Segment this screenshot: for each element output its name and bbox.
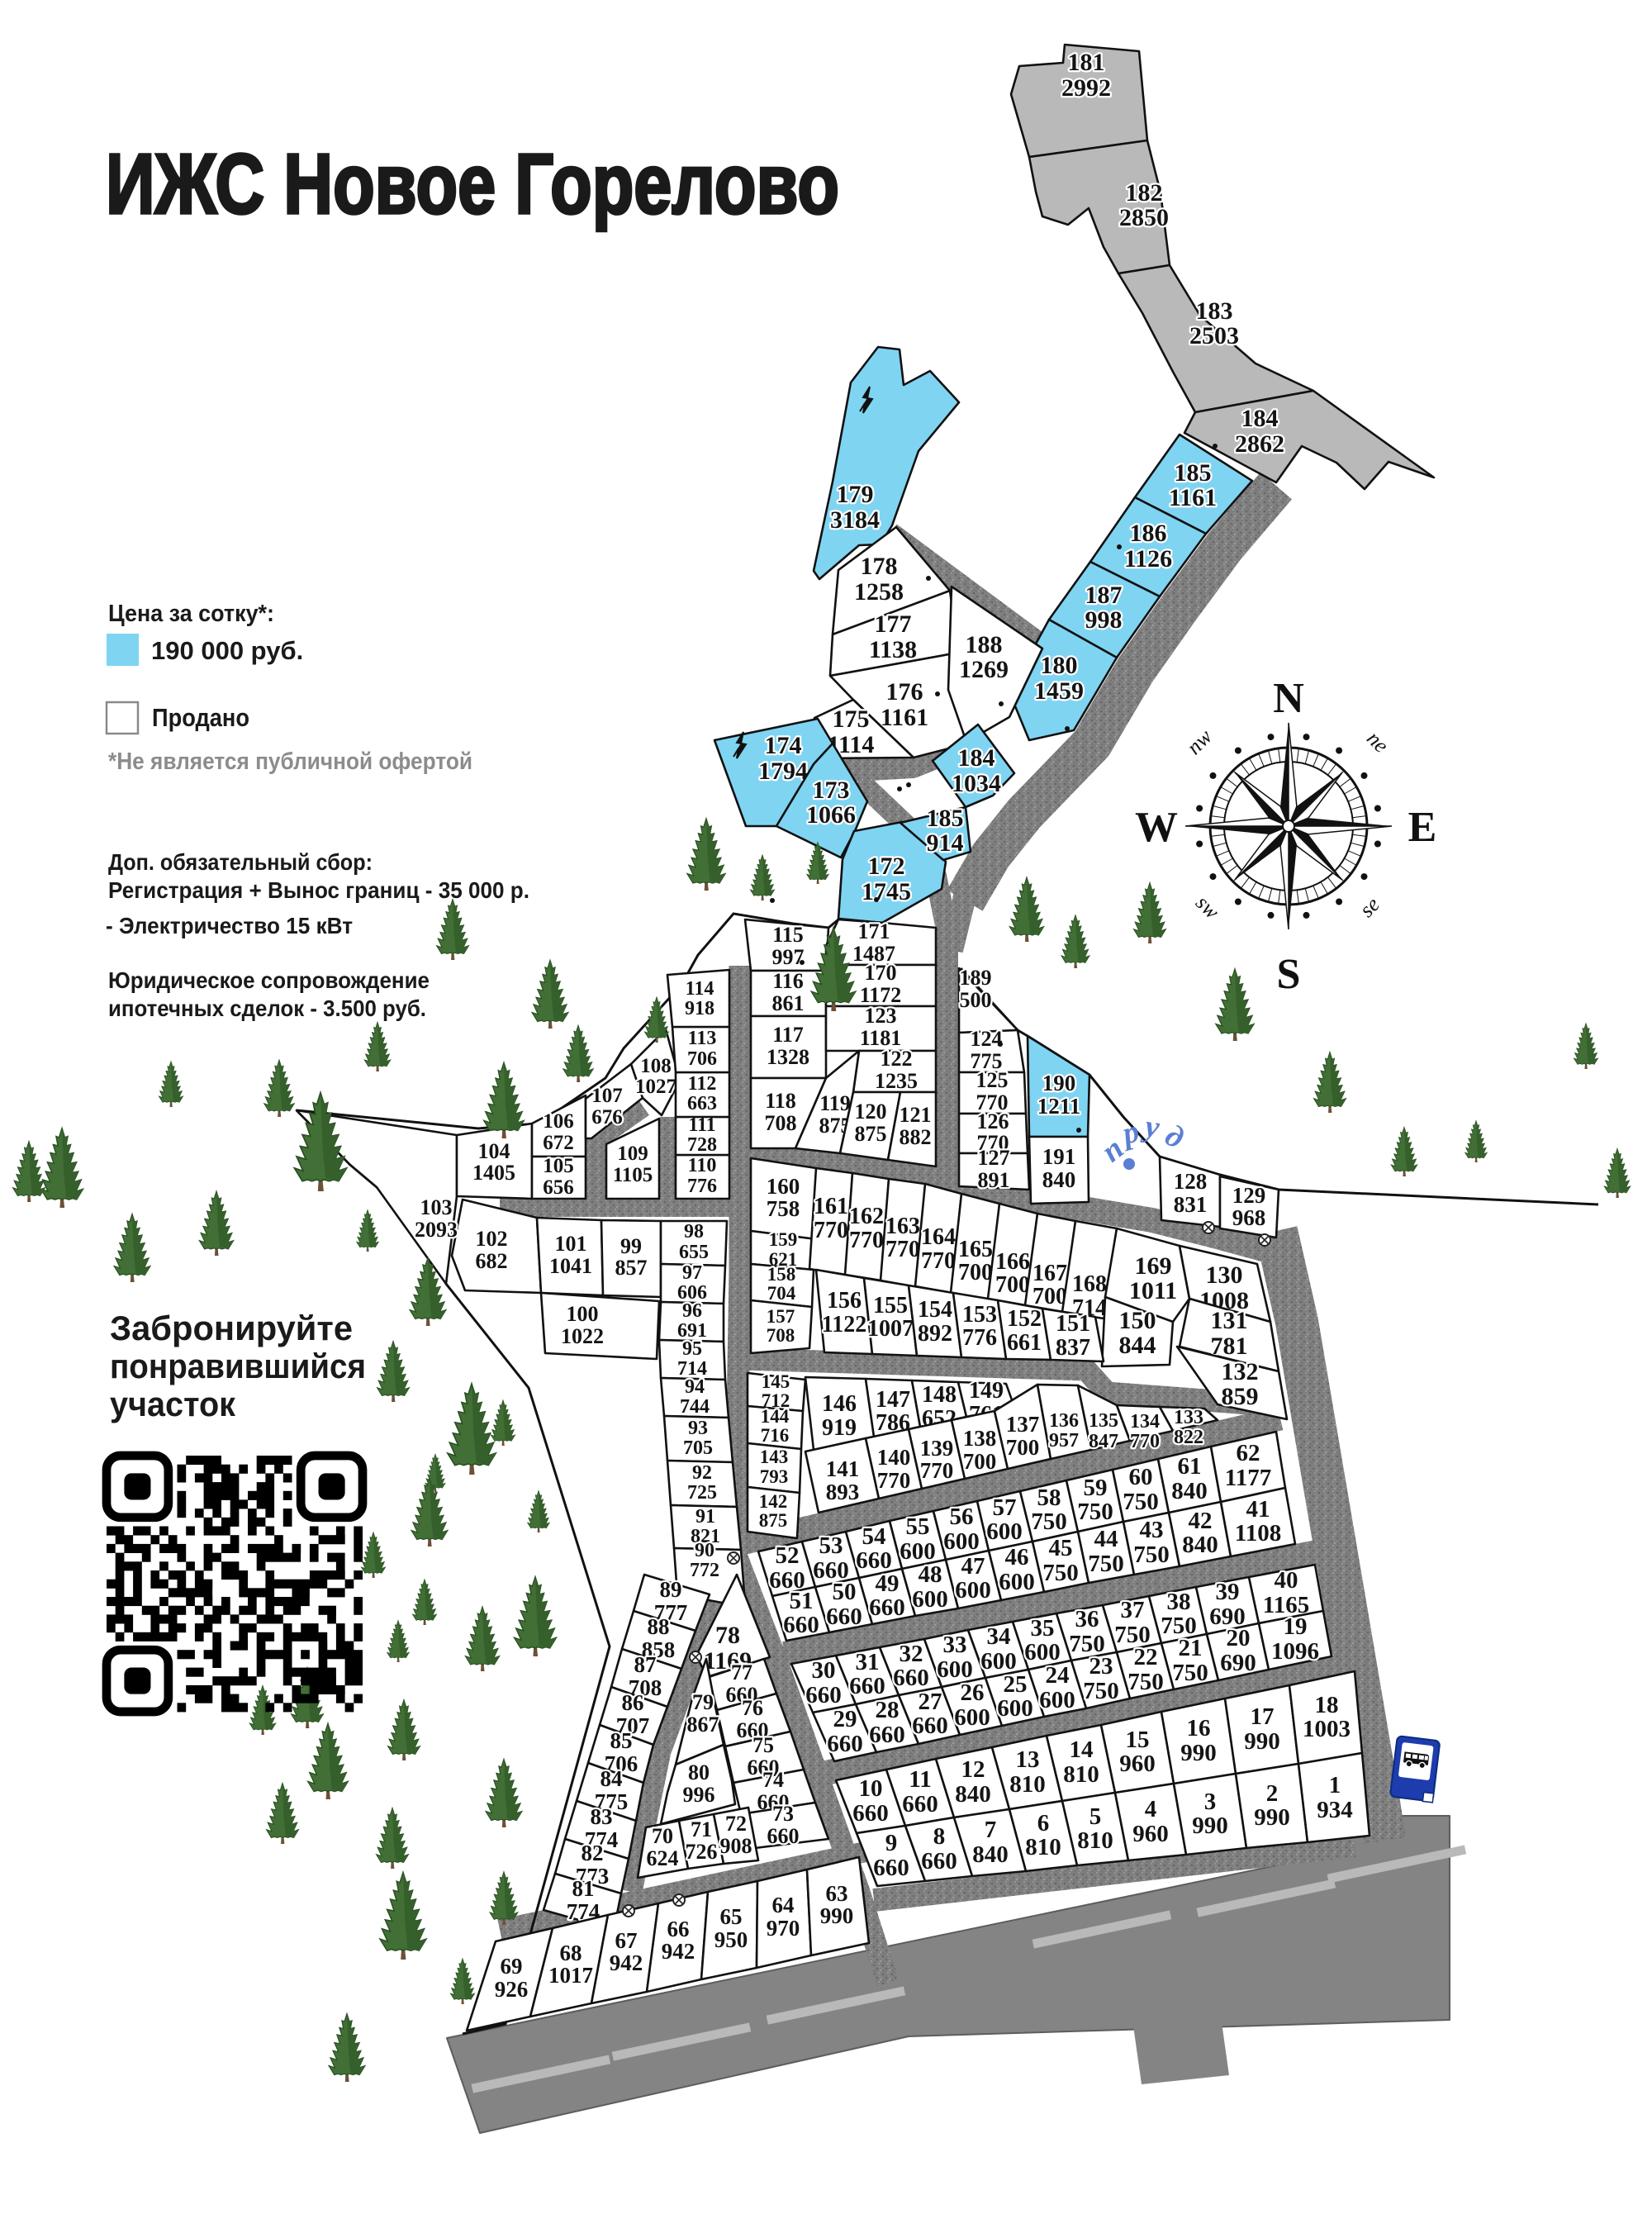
svg-text:49: 49 [876,1570,900,1597]
svg-text:655: 655 [679,1242,709,1263]
svg-text:165: 165 [958,1237,993,1262]
svg-text:1017: 1017 [548,1963,593,1988]
svg-text:1177: 1177 [1225,1465,1271,1491]
svg-text:67: 67 [615,1928,638,1953]
svg-text:Регистрация + Вынос границ - 3: Регистрация + Вынос границ - 35 000 р. [108,877,529,903]
svg-text:45: 45 [1049,1535,1073,1561]
svg-text:171: 171 [858,919,890,943]
svg-text:68: 68 [560,1941,582,1965]
svg-text:3: 3 [1204,1789,1217,1815]
svg-text:139: 139 [920,1436,954,1461]
svg-text:113: 113 [688,1028,717,1049]
svg-text:168: 168 [1072,1271,1107,1297]
svg-text:понравившийся: понравившийся [110,1347,366,1385]
svg-text:169: 169 [1135,1252,1172,1280]
svg-text:23: 23 [1089,1653,1113,1680]
svg-text:1022: 1022 [561,1324,604,1348]
svg-text:660: 660 [805,1682,842,1708]
svg-text:2862: 2862 [1235,430,1284,458]
svg-text:7: 7 [985,1817,997,1843]
svg-text:29: 29 [833,1706,857,1732]
svg-text:793: 793 [760,1466,789,1487]
svg-text:160: 160 [767,1174,800,1199]
svg-text:145: 145 [762,1371,790,1392]
svg-text:998: 998 [1085,606,1123,634]
svg-text:20: 20 [1227,1625,1251,1651]
svg-text:177: 177 [875,611,912,638]
svg-text:94: 94 [685,1376,705,1398]
svg-text:167: 167 [1032,1261,1067,1286]
svg-text:891: 891 [978,1168,1010,1192]
svg-text:73: 73 [772,1802,794,1826]
svg-text:W: W [1135,804,1178,851]
svg-text:600: 600 [955,1577,991,1603]
svg-text:840: 840 [955,1781,991,1808]
svg-text:57: 57 [993,1494,1017,1521]
svg-text:950: 950 [714,1927,748,1952]
svg-text:660: 660 [852,1800,889,1827]
svg-text:179: 179 [837,481,874,508]
svg-text:926: 926 [495,1977,529,2002]
svg-text:170: 170 [865,961,897,985]
svg-text:859: 859 [1222,1383,1259,1410]
svg-text:129: 129 [1232,1183,1266,1208]
svg-text:162: 162 [849,1204,884,1229]
svg-text:656: 656 [543,1176,574,1199]
svg-text:660: 660 [873,1855,909,1881]
svg-text:32: 32 [900,1641,923,1667]
svg-text:147: 147 [876,1387,910,1413]
svg-text:867: 867 [687,1713,719,1737]
svg-text:101: 101 [555,1232,587,1256]
svg-text:55: 55 [906,1513,930,1540]
svg-text:53: 53 [819,1532,843,1559]
svg-text:1405: 1405 [472,1161,515,1185]
svg-text:Юридическое сопровождение: Юридическое сопровождение [108,967,430,993]
svg-text:185: 185 [927,805,964,832]
svg-text:22: 22 [1134,1644,1158,1670]
svg-text:42: 42 [1189,1508,1213,1534]
svg-text:156: 156 [827,1288,862,1314]
svg-text:4: 4 [1145,1796,1157,1822]
svg-text:89: 89 [660,1577,682,1602]
svg-text:126: 126 [977,1109,1009,1133]
svg-text:682: 682 [476,1249,508,1273]
svg-text:840: 840 [1042,1167,1076,1192]
svg-text:121: 121 [900,1103,932,1127]
svg-text:27: 27 [919,1689,942,1715]
svg-text:104: 104 [478,1139,510,1163]
svg-text:758: 758 [767,1196,800,1221]
svg-text:31: 31 [856,1649,880,1675]
svg-text:191: 191 [1042,1144,1076,1169]
svg-text:81: 81 [572,1876,595,1901]
svg-text:106: 106 [543,1110,574,1133]
svg-text:942: 942 [662,1939,695,1964]
svg-text:120: 120 [855,1100,887,1124]
svg-text:776: 776 [962,1325,997,1351]
svg-text:Забронируйте: Забронируйте [110,1309,353,1347]
svg-text:772: 772 [690,1560,719,1581]
svg-text:86: 86 [622,1690,644,1715]
svg-text:164: 164 [921,1224,956,1250]
svg-text:91: 91 [695,1506,715,1527]
svg-text:15: 15 [1126,1727,1150,1753]
svg-text:S: S [1277,951,1301,998]
svg-text:181: 181 [1068,49,1105,76]
svg-text:157: 157 [767,1306,795,1327]
svg-text:661: 661 [1007,1330,1042,1356]
svg-text:706: 706 [687,1048,717,1070]
svg-text:700: 700 [958,1260,993,1285]
svg-text:1258: 1258 [854,578,904,606]
svg-text:66: 66 [667,1917,690,1941]
svg-text:1105: 1105 [613,1164,653,1186]
svg-text:117: 117 [772,1023,804,1047]
svg-text:770: 770 [920,1458,954,1483]
svg-text:183: 183 [1196,297,1233,325]
svg-text:1745: 1745 [862,878,911,905]
svg-text:660: 660 [912,1713,948,1739]
svg-text:153: 153 [962,1302,997,1328]
svg-text:750: 750 [1031,1508,1067,1535]
svg-text:77: 77 [731,1660,752,1684]
svg-text:125: 125 [976,1068,1009,1092]
svg-text:934: 934 [1317,1797,1353,1823]
svg-text:172: 172 [868,853,905,880]
svg-text:1007: 1007 [867,1316,914,1342]
svg-text:704: 704 [767,1283,796,1304]
svg-text:2992: 2992 [1061,74,1111,102]
svg-text:1027: 1027 [635,1076,676,1098]
svg-text:10: 10 [859,1775,883,1802]
svg-text:188: 188 [966,631,1003,658]
svg-text:726: 726 [686,1840,718,1864]
svg-text:186: 186 [1130,520,1167,547]
svg-text:914: 914 [927,829,964,857]
svg-text:115: 115 [772,923,804,947]
svg-text:600: 600 [954,1704,990,1731]
svg-text:708: 708 [765,1111,797,1135]
svg-text:74: 74 [762,1768,784,1792]
svg-text:728: 728 [687,1134,717,1156]
svg-text:137: 137 [1006,1412,1040,1437]
svg-text:136: 136 [1049,1410,1079,1432]
svg-text:750: 750 [1172,1660,1208,1686]
svg-text:62: 62 [1237,1440,1260,1466]
svg-text:127: 127 [978,1146,1010,1170]
svg-text:149: 149 [969,1378,1004,1404]
svg-text:1011: 1011 [1129,1277,1177,1304]
svg-text:970: 970 [767,1916,800,1941]
svg-text:Продано: Продано [152,703,249,732]
svg-text:660: 660 [902,1791,938,1817]
svg-text:919: 919 [822,1415,857,1441]
svg-text:600: 600 [1039,1687,1075,1713]
svg-text:6: 6 [1037,1810,1050,1836]
svg-text:770: 770 [921,1248,956,1274]
svg-text:34: 34 [987,1623,1011,1650]
svg-text:831: 831 [1174,1192,1208,1217]
svg-text:1122: 1122 [822,1312,866,1337]
svg-text:1161: 1161 [881,704,928,731]
svg-text:660: 660 [869,1594,905,1621]
svg-text:71: 71 [691,1817,712,1841]
svg-text:750: 750 [1088,1551,1124,1577]
svg-text:60: 60 [1129,1464,1153,1490]
svg-text:105: 105 [543,1155,574,1177]
svg-text:69: 69 [501,1954,523,1979]
svg-text:184: 184 [958,744,995,772]
svg-text:114: 114 [686,978,714,1000]
svg-text:78: 78 [715,1622,740,1649]
svg-text:100: 100 [567,1302,599,1326]
svg-text:99: 99 [620,1234,642,1258]
svg-text:21: 21 [1179,1635,1203,1661]
svg-text:990: 990 [1180,1740,1217,1766]
svg-text:95: 95 [682,1338,702,1360]
svg-text:Доп. обязательный сбор:: Доп. обязательный сбор: [108,849,373,875]
svg-text:25: 25 [1004,1671,1028,1698]
svg-text:128: 128 [1174,1169,1208,1194]
svg-text:33: 33 [943,1632,967,1658]
svg-text:43: 43 [1140,1517,1164,1543]
svg-text:80: 80 [688,1760,710,1784]
svg-text:892: 892 [918,1321,952,1347]
svg-text:660: 660 [767,1824,800,1848]
svg-text:2093: 2093 [415,1218,458,1242]
svg-text:810: 810 [1063,1761,1099,1788]
svg-text:17: 17 [1251,1703,1275,1730]
svg-text:46: 46 [1005,1544,1029,1570]
svg-text:185: 185 [1175,459,1212,487]
svg-text:663: 663 [687,1093,717,1114]
svg-text:184: 184 [1241,405,1279,432]
svg-text:141: 141 [826,1456,860,1481]
svg-text:35: 35 [1031,1615,1055,1641]
svg-text:18: 18 [1315,1692,1339,1718]
svg-text:12: 12 [961,1756,985,1783]
svg-text:75: 75 [752,1733,774,1757]
svg-text:48: 48 [919,1561,942,1588]
svg-text:Цена за сотку*:: Цена за сотку*: [108,601,274,627]
svg-text:- Электричество 15 кВт: - Электричество 15 кВт [106,913,353,938]
svg-text:960: 960 [1119,1751,1156,1777]
svg-text:500: 500 [960,988,992,1012]
svg-text:161: 161 [814,1194,848,1219]
svg-text:750: 750 [1133,1542,1170,1568]
svg-text:9: 9 [885,1830,898,1856]
svg-text:600: 600 [999,1569,1035,1595]
svg-text:175: 175 [833,706,870,733]
svg-text:E: E [1408,804,1437,851]
svg-text:882: 882 [900,1125,932,1149]
svg-text:159: 159 [769,1229,798,1250]
svg-text:ИЖС Новое Горелово: ИЖС Новое Горелово [106,136,839,231]
svg-text:187: 187 [1085,582,1123,609]
svg-text:116: 116 [772,969,804,993]
svg-text:61: 61 [1178,1453,1202,1480]
svg-text:190: 190 [1042,1071,1076,1095]
svg-text:957: 957 [1049,1430,1079,1451]
svg-text:122: 122 [881,1047,913,1071]
svg-text:700: 700 [995,1272,1030,1298]
svg-text:660: 660 [826,1603,862,1630]
svg-text:861: 861 [772,991,805,1015]
svg-text:770: 770 [1130,1431,1160,1452]
svg-text:36: 36 [1075,1606,1099,1632]
svg-text:1066: 1066 [806,801,856,829]
svg-text:135: 135 [1089,1410,1118,1432]
svg-text:660: 660 [783,1612,819,1638]
svg-text:79: 79 [692,1690,714,1714]
svg-text:716: 716 [761,1425,790,1446]
svg-text:660: 660 [921,1848,957,1874]
svg-text:1108: 1108 [1235,1520,1281,1546]
svg-text:50: 50 [833,1579,857,1605]
svg-text:158: 158 [767,1264,796,1285]
svg-text:24: 24 [1046,1662,1070,1689]
svg-text:2503: 2503 [1189,322,1239,349]
svg-text:ипотечных сделок - 3.500 руб.: ипотечных сделок - 3.500 руб. [108,995,426,1021]
svg-text:123: 123 [865,1004,897,1028]
svg-text:88: 88 [648,1614,670,1639]
svg-text:672: 672 [543,1132,574,1154]
svg-text:968: 968 [1232,1205,1266,1230]
svg-text:166: 166 [995,1249,1030,1275]
svg-text:124: 124 [971,1027,1003,1051]
svg-text:11: 11 [909,1766,931,1793]
svg-text:26: 26 [961,1680,985,1706]
svg-text:1138: 1138 [869,636,917,663]
svg-text:102: 102 [476,1227,508,1251]
svg-text:600: 600 [912,1586,948,1613]
svg-text:*Не является публичной офертой: *Не является публичной офертой [108,748,472,775]
svg-text:960: 960 [1132,1821,1169,1847]
svg-text:84: 84 [601,1766,623,1791]
svg-text:700: 700 [1006,1435,1040,1460]
svg-text:76: 76 [742,1696,763,1720]
svg-text:148: 148 [922,1382,957,1408]
svg-text:840: 840 [972,1841,1009,1868]
svg-text:990: 990 [1244,1728,1280,1755]
svg-text:70: 70 [652,1824,673,1848]
svg-text:110: 110 [688,1155,717,1176]
svg-text:840: 840 [1171,1478,1208,1504]
svg-text:750: 750 [1123,1489,1159,1515]
svg-text:173: 173 [813,777,850,804]
svg-text:840: 840 [1182,1532,1218,1558]
svg-text:N: N [1273,675,1304,722]
svg-text:844: 844 [1119,1332,1156,1359]
svg-text:750: 750 [1083,1678,1119,1704]
svg-text:участок: участок [110,1385,236,1423]
svg-text:1034: 1034 [952,770,1001,797]
svg-text:138: 138 [963,1426,997,1451]
svg-text:176: 176 [886,678,923,706]
svg-text:133: 133 [1174,1407,1203,1428]
svg-text:93: 93 [688,1418,708,1439]
svg-text:1096: 1096 [1271,1638,1319,1665]
svg-text:142: 142 [759,1491,788,1512]
svg-text:140: 140 [877,1445,911,1470]
svg-text:1126: 1126 [1124,545,1172,573]
svg-text:64: 64 [772,1893,795,1917]
svg-text:107: 107 [591,1085,623,1107]
svg-text:942: 942 [610,1950,643,1975]
svg-text:857: 857 [615,1256,648,1280]
svg-text:2: 2 [1266,1780,1279,1807]
svg-text:52: 52 [776,1542,800,1569]
svg-text:1328: 1328 [767,1045,809,1069]
svg-text:155: 155 [873,1293,908,1318]
svg-text:40: 40 [1275,1567,1298,1594]
svg-text:893: 893 [826,1480,860,1504]
svg-text:85: 85 [610,1728,633,1753]
svg-text:98: 98 [684,1221,704,1242]
svg-text:1: 1 [1329,1772,1341,1798]
svg-text:1235: 1235 [875,1069,918,1093]
svg-text:112: 112 [688,1073,717,1095]
svg-text:837: 837 [1056,1335,1090,1361]
svg-text:51: 51 [790,1588,814,1614]
svg-text:39: 39 [1216,1579,1240,1605]
svg-text:83: 83 [591,1804,613,1829]
svg-text:918: 918 [685,998,714,1019]
svg-text:174: 174 [765,732,802,759]
svg-text:28: 28 [876,1697,900,1723]
svg-text:132: 132 [1222,1358,1259,1385]
svg-text:19: 19 [1284,1613,1308,1640]
svg-text:109: 109 [617,1143,648,1165]
svg-text:59: 59 [1084,1475,1108,1501]
svg-text:58: 58 [1037,1485,1061,1511]
svg-text:63: 63 [826,1881,848,1906]
svg-text:41: 41 [1246,1496,1270,1523]
svg-text:660: 660 [869,1722,905,1748]
svg-text:624: 624 [647,1846,679,1870]
svg-text:189: 189 [960,966,992,990]
svg-text:770: 770 [814,1218,848,1243]
svg-text:163: 163 [885,1214,920,1239]
svg-text:600: 600 [986,1518,1023,1545]
svg-text:56: 56 [950,1504,974,1530]
svg-text:180: 180 [1041,652,1078,679]
svg-text:1161: 1161 [1169,484,1217,511]
svg-text:87: 87 [634,1652,657,1677]
svg-text:750: 750 [1042,1560,1079,1586]
svg-text:1003: 1003 [1303,1716,1351,1742]
svg-text:92: 92 [692,1462,712,1484]
svg-text:65: 65 [720,1904,743,1929]
svg-text:3184: 3184 [830,506,880,534]
svg-text:96: 96 [682,1300,702,1322]
svg-text:103: 103 [420,1195,453,1219]
svg-text:1459: 1459 [1034,677,1084,705]
svg-text:190 000 руб.: 190 000 руб. [151,636,303,665]
svg-text:182: 182 [1126,179,1163,207]
svg-text:676: 676 [591,1106,623,1128]
svg-text:16: 16 [1187,1715,1211,1741]
svg-text:150: 150 [1119,1307,1156,1334]
svg-text:990: 990 [1254,1804,1290,1831]
svg-text:708: 708 [767,1325,795,1346]
svg-text:1041: 1041 [549,1254,592,1278]
svg-text:14: 14 [1070,1737,1094,1763]
svg-text:47: 47 [961,1553,985,1580]
svg-text:97: 97 [682,1262,702,1284]
svg-text:154: 154 [918,1297,952,1323]
